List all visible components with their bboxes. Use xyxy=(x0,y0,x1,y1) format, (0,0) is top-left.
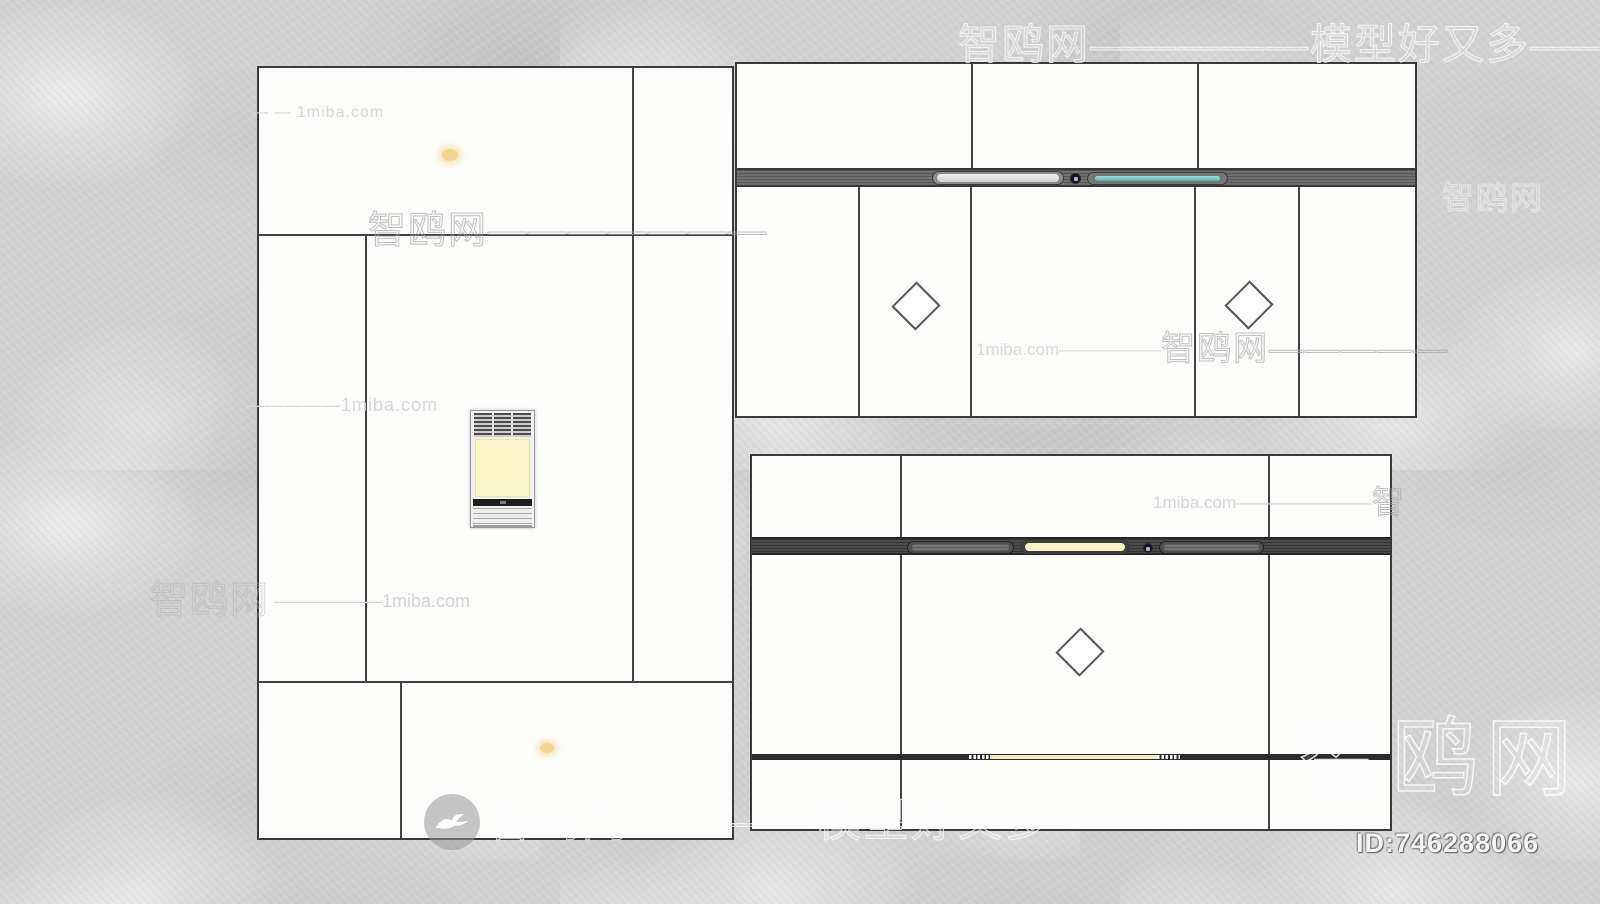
heater-frame-edge xyxy=(473,525,532,527)
panel-seam xyxy=(858,187,860,416)
heater-light-panel xyxy=(475,439,530,497)
panel-seam xyxy=(900,555,902,754)
heater-vents xyxy=(473,508,532,524)
led-strip xyxy=(969,755,1180,759)
panel-seam xyxy=(632,68,634,683)
panel-seam xyxy=(1298,187,1300,416)
sensor-lens xyxy=(1143,543,1153,553)
grille-column xyxy=(494,413,512,437)
panel-seam xyxy=(259,681,732,683)
led-dots xyxy=(1157,755,1180,759)
lamp-diffuser xyxy=(937,174,1059,182)
panel-seam xyxy=(1268,555,1270,754)
lamp-diffuser xyxy=(1025,543,1125,551)
panel-seam xyxy=(365,234,367,683)
heater-control-band xyxy=(473,499,532,506)
panel-seam xyxy=(1268,760,1270,829)
heater-grille xyxy=(474,413,531,437)
panel-seam xyxy=(970,187,972,416)
lamp-diffuser xyxy=(1095,176,1220,181)
panel-seam xyxy=(1194,187,1196,416)
diamond-ornament xyxy=(1224,280,1273,329)
panel-seam xyxy=(971,64,973,168)
wall-panel-bottom-right xyxy=(750,454,1392,831)
wall-panel-top-right xyxy=(735,62,1417,418)
grille-column xyxy=(513,413,531,437)
dark-strip-lamp xyxy=(907,541,1014,554)
light-strip-housing-dark xyxy=(752,537,1390,555)
panel-seam xyxy=(259,234,732,236)
lamp-louver xyxy=(912,544,1009,551)
lens-glint xyxy=(1146,547,1150,551)
lamp-louver xyxy=(1164,544,1259,551)
heater-logo xyxy=(500,501,506,504)
diamond-ornament xyxy=(1055,627,1104,676)
lens-glint xyxy=(1074,177,1078,181)
teal-strip-lamp xyxy=(1087,172,1228,185)
panel-seam xyxy=(900,760,902,829)
yellow-strip-lamp xyxy=(1020,540,1130,554)
white-strip-lamp xyxy=(932,171,1064,185)
model-preview-image: — — 1miba.com 智鸥网——————— —————1miba.com … xyxy=(0,0,1600,904)
sensor-lens xyxy=(1070,173,1081,184)
led-dots xyxy=(969,755,990,759)
dark-strip-lamp xyxy=(1159,541,1264,554)
panel-seam xyxy=(1197,64,1199,168)
panel-seam xyxy=(400,683,402,838)
diamond-ornament xyxy=(891,281,940,330)
grille-column xyxy=(474,413,492,437)
light-strip-housing xyxy=(737,168,1415,187)
panel-seam xyxy=(1268,456,1270,537)
panel-seam xyxy=(900,456,902,537)
bath-heater-unit xyxy=(470,410,535,528)
led-glow xyxy=(990,755,1157,759)
downlight xyxy=(442,149,458,161)
downlight xyxy=(540,743,554,753)
ceiling-panel-left xyxy=(257,66,734,840)
